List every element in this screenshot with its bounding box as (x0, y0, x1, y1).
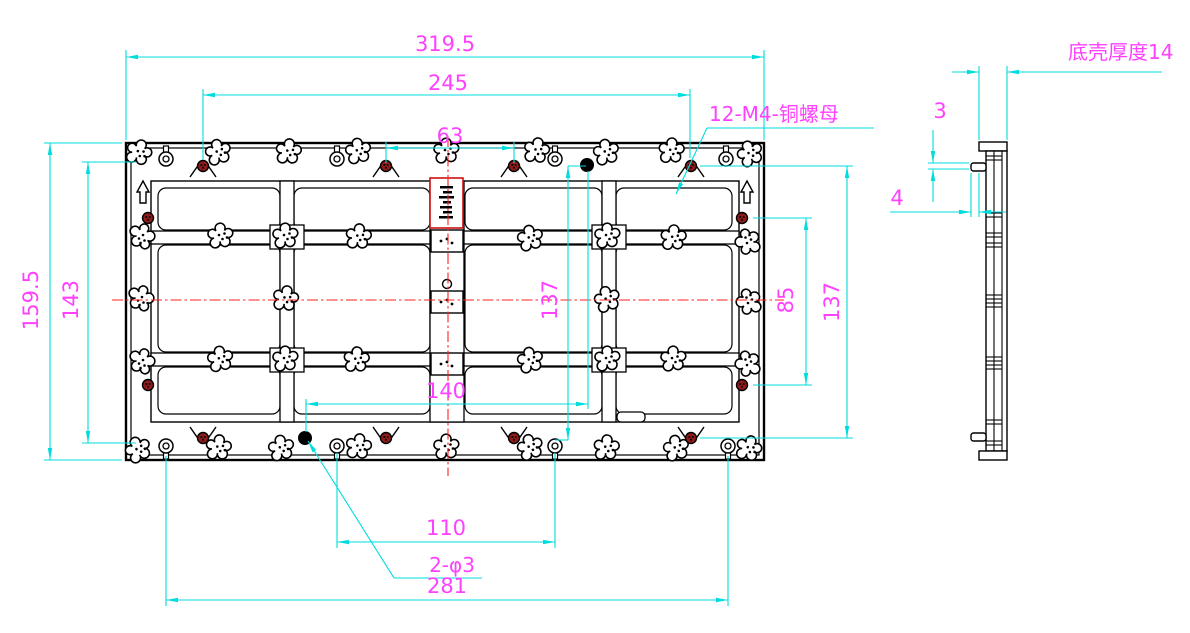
floor-cell (158, 245, 280, 352)
keyhole-hole (330, 152, 344, 166)
m4-copper-nut (737, 213, 748, 224)
m4-copper-nut (143, 213, 154, 224)
dim-hole-span: 110 (426, 516, 466, 540)
keyhole-hole (721, 439, 735, 453)
m4-copper-nut (198, 161, 209, 172)
m4-copper-nut (198, 433, 209, 444)
phi3-hole (581, 159, 594, 172)
center-dot-box (431, 353, 463, 375)
dim-side-pin: 4 (890, 186, 903, 210)
dim-mid-height: 137 (538, 280, 562, 320)
label-nut-callout: 12-M4-铜螺母 (709, 102, 839, 126)
keyhole-hole (548, 439, 562, 453)
keyhole-hole (159, 439, 173, 453)
floor-cell (294, 245, 430, 352)
floor-cell (616, 188, 732, 230)
marking-highlight-box (430, 178, 463, 228)
dim-right-height: 137 (820, 282, 844, 322)
floor-cell (616, 367, 732, 414)
clip-tab (617, 412, 645, 422)
dim-overall-width: 319.5 (415, 32, 475, 56)
cad-drawing: 319.5 245 63 12-M4-铜螺母 底壳厚度14 3 4 159.5 … (0, 0, 1190, 633)
m4-copper-nut (737, 380, 748, 391)
small-hole (443, 280, 452, 289)
label-shell-thickness: 底壳厚度14 (1068, 40, 1173, 64)
floor-cell (465, 245, 602, 352)
floor-cell (465, 367, 602, 414)
side-pin-bottom (971, 433, 986, 441)
dim-bottom-width: 281 (427, 574, 467, 598)
floor-cell (294, 367, 430, 414)
m4-copper-nut (686, 433, 697, 444)
dim-inner-height: 143 (59, 280, 83, 320)
dim-nut-span-width: 245 (428, 71, 468, 95)
floor-cell (158, 367, 280, 414)
m4-copper-nut (509, 433, 520, 444)
center-dot-box (431, 230, 463, 252)
dim-hole-offset-width: 140 (426, 379, 466, 403)
dim-center-nut-span: 63 (437, 124, 464, 148)
keyhole-hole (159, 152, 173, 166)
center-dot-box (431, 291, 463, 313)
m4-copper-nut (143, 380, 154, 391)
keyhole-hole (548, 152, 562, 166)
keyhole-hole (719, 152, 733, 166)
keyhole-hole (330, 439, 344, 453)
side-view (971, 142, 1007, 460)
floor-cell (465, 188, 602, 230)
floor-cell (616, 245, 732, 352)
leader-hole-callout (308, 441, 394, 578)
dim-side-step: 3 (933, 99, 946, 123)
side-pin-top (971, 163, 986, 171)
dim-right-nut-span: 85 (774, 287, 798, 314)
m4-copper-nut (381, 433, 392, 444)
cad-drawing-canvas: 319.5 245 63 12-M4-铜螺母 底壳厚度14 3 4 159.5 … (0, 0, 1190, 633)
dim-overall-height: 159.5 (19, 270, 43, 330)
